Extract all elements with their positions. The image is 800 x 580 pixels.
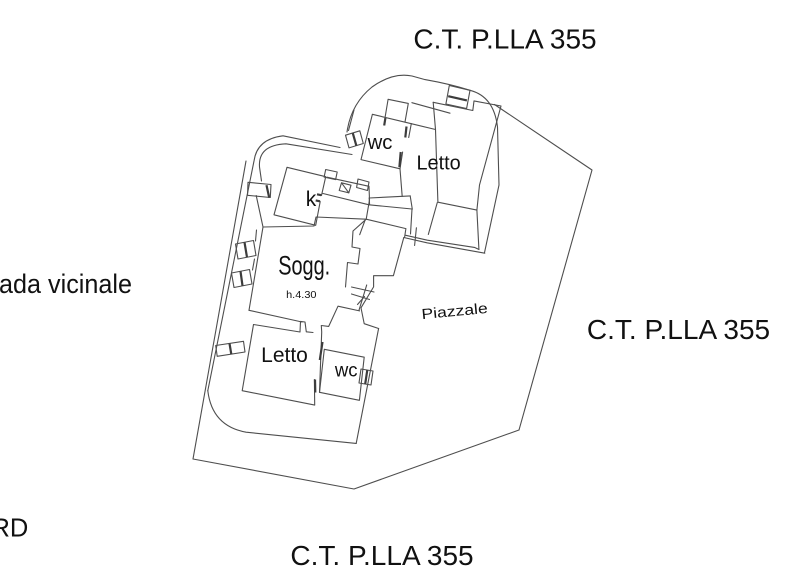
svg-text:ada vicinale: ada vicinale (0, 269, 132, 299)
svg-text:wc: wc (334, 360, 358, 381)
svg-text:Piazzale: Piazzale (421, 301, 489, 323)
svg-text:k: k (306, 188, 317, 211)
svg-text:C.T. P.LLA 355: C.T. P.LLA 355 (290, 540, 473, 571)
svg-text:Letto: Letto (261, 344, 308, 367)
svg-text:Sogg.: Sogg. (278, 251, 330, 281)
svg-text:Letto: Letto (417, 153, 461, 175)
svg-text:C.T. P.LLA 355: C.T. P.LLA 355 (413, 24, 596, 55)
svg-text:wc: wc (367, 132, 393, 154)
svg-text:C.T. P.LLA 355: C.T. P.LLA 355 (587, 314, 770, 345)
svg-text:h.4.30: h.4.30 (286, 289, 317, 301)
svg-text:RD: RD (0, 515, 28, 543)
